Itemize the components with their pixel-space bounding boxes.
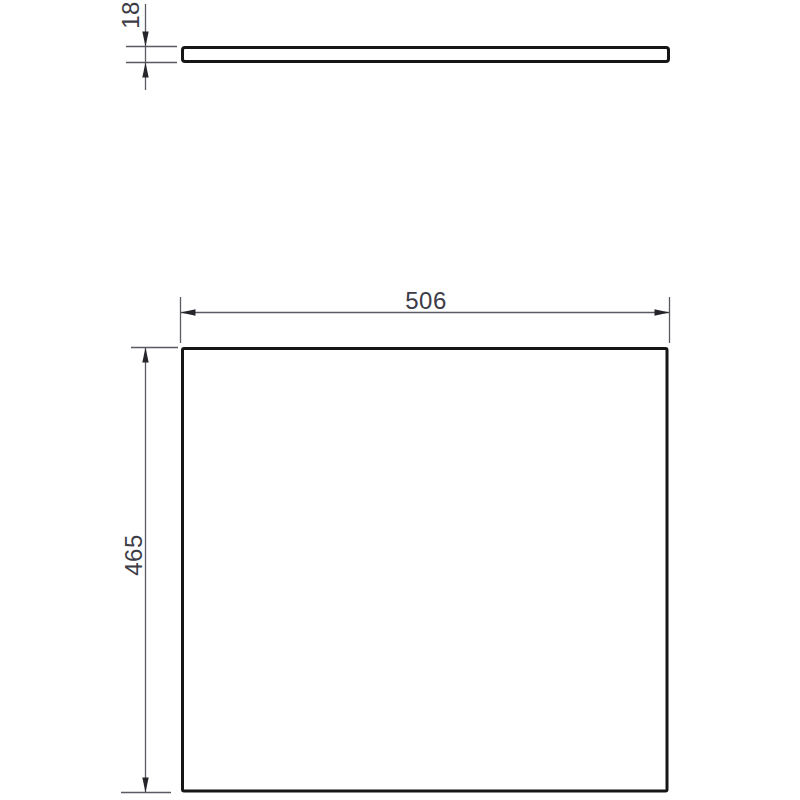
arrowhead bbox=[142, 348, 148, 363]
panel-side-view-outline bbox=[183, 48, 669, 62]
dimension-height: 465 bbox=[120, 348, 178, 793]
dimension-thickness-label: 18 bbox=[117, 1, 144, 29]
arrowhead bbox=[142, 32, 148, 47]
drawing-canvas: 18 506 bbox=[0, 0, 800, 800]
dimension-width-label: 506 bbox=[405, 287, 447, 314]
dimension-height-label: 465 bbox=[120, 534, 147, 576]
arrowhead bbox=[181, 309, 196, 315]
panel-front-view bbox=[183, 349, 668, 792]
technical-drawing: 18 506 bbox=[0, 0, 800, 800]
dimension-width: 506 bbox=[181, 287, 670, 343]
dimension-thickness: 18 bbox=[117, 1, 177, 90]
arrowhead bbox=[142, 63, 148, 78]
arrowhead bbox=[142, 778, 148, 793]
arrowhead bbox=[655, 309, 670, 315]
panel-side-view bbox=[183, 48, 669, 62]
panel-front-view-outline bbox=[183, 349, 668, 792]
